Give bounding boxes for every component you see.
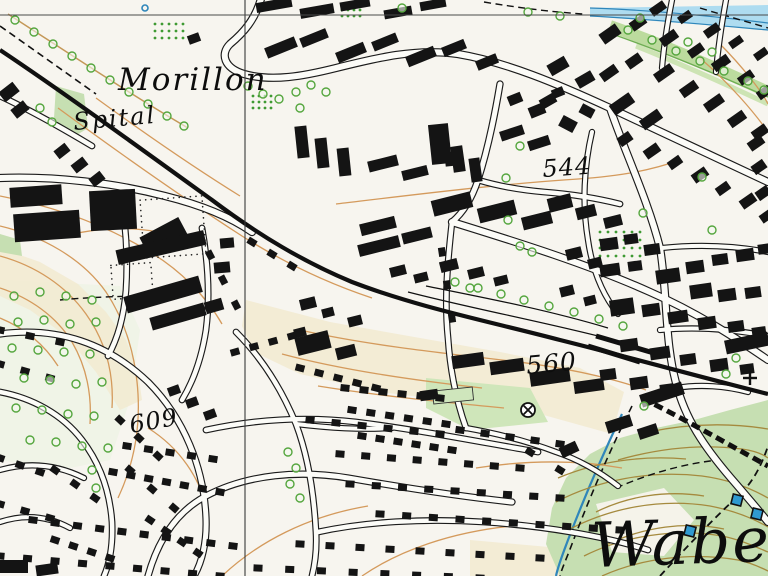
shrub-dot bbox=[359, 9, 362, 12]
building bbox=[416, 392, 426, 400]
building bbox=[443, 280, 451, 290]
shrub-dot bbox=[154, 23, 157, 26]
building bbox=[160, 567, 170, 575]
tree-icon bbox=[12, 404, 20, 412]
shrub-dot bbox=[182, 37, 185, 40]
building bbox=[477, 489, 486, 497]
building bbox=[530, 436, 540, 444]
shrub-dot bbox=[175, 23, 178, 26]
shrub-dot bbox=[623, 231, 626, 234]
building bbox=[375, 435, 385, 443]
building bbox=[393, 437, 403, 445]
tree-icon bbox=[92, 484, 100, 492]
tree-icon bbox=[696, 57, 704, 65]
shrub-dot bbox=[270, 107, 273, 110]
shrub-dot bbox=[161, 30, 164, 33]
tree-icon bbox=[520, 296, 528, 304]
building bbox=[445, 549, 454, 557]
building bbox=[717, 288, 736, 302]
building bbox=[441, 420, 451, 428]
shrub-dot bbox=[639, 255, 642, 258]
tree-icon bbox=[732, 354, 740, 362]
tree-icon bbox=[275, 95, 283, 103]
building bbox=[372, 482, 381, 490]
shrub-dot bbox=[631, 231, 634, 234]
shrub-dot bbox=[161, 37, 164, 40]
tree-icon bbox=[180, 122, 188, 130]
shrub-dot bbox=[154, 30, 157, 33]
tree-icon bbox=[34, 346, 42, 354]
building bbox=[0, 552, 5, 560]
building bbox=[23, 555, 33, 563]
building bbox=[348, 569, 357, 576]
building bbox=[345, 480, 354, 488]
shrub-dot bbox=[175, 37, 178, 40]
tree-icon bbox=[619, 322, 627, 330]
shrub-dot bbox=[639, 239, 642, 242]
shrub-dot bbox=[639, 231, 642, 234]
building bbox=[429, 514, 438, 522]
building bbox=[9, 184, 62, 208]
shrub-dot bbox=[270, 95, 273, 98]
tree-icon bbox=[8, 344, 16, 352]
building bbox=[455, 426, 465, 434]
building bbox=[535, 521, 544, 529]
building bbox=[385, 545, 394, 553]
building bbox=[144, 445, 154, 453]
tree-icon bbox=[760, 86, 768, 94]
shrub-dot bbox=[615, 255, 618, 258]
shrub-dot bbox=[607, 231, 610, 234]
building bbox=[105, 562, 115, 570]
building bbox=[361, 452, 371, 460]
building bbox=[435, 394, 445, 402]
tree-icon bbox=[10, 292, 18, 300]
topographic-map: MorillonSpital544560609Wabe bbox=[0, 0, 768, 576]
building bbox=[415, 547, 424, 555]
building bbox=[366, 409, 376, 417]
tree-icon bbox=[322, 88, 330, 96]
tree-icon bbox=[639, 209, 647, 217]
building bbox=[383, 424, 393, 432]
building bbox=[757, 243, 768, 255]
tree-icon bbox=[36, 288, 44, 296]
tree-icon bbox=[296, 104, 304, 112]
tree-icon bbox=[516, 142, 524, 150]
shrub-dot bbox=[631, 255, 634, 258]
building bbox=[228, 542, 238, 550]
tree-icon bbox=[595, 315, 603, 323]
tree-icon bbox=[52, 438, 60, 446]
building bbox=[253, 564, 262, 571]
building bbox=[357, 432, 367, 440]
building bbox=[535, 554, 544, 562]
building bbox=[325, 542, 334, 550]
building bbox=[412, 456, 422, 464]
building bbox=[378, 388, 388, 396]
building bbox=[411, 440, 421, 448]
building bbox=[562, 523, 571, 531]
tree-icon bbox=[87, 64, 95, 72]
tree-icon bbox=[720, 67, 728, 75]
building bbox=[475, 551, 484, 559]
building bbox=[505, 433, 515, 441]
building bbox=[380, 570, 389, 576]
tree-icon bbox=[163, 112, 171, 120]
tree-icon bbox=[502, 174, 510, 182]
building bbox=[0, 560, 28, 573]
tree-icon bbox=[38, 406, 46, 414]
map-label-elev-560: 560 bbox=[525, 347, 578, 380]
shrub-dot bbox=[182, 23, 185, 26]
building bbox=[503, 491, 512, 499]
building bbox=[450, 487, 459, 495]
tree-icon bbox=[92, 318, 100, 326]
building bbox=[347, 406, 357, 414]
tree-icon bbox=[556, 12, 564, 20]
shrub-dot bbox=[599, 231, 602, 234]
building bbox=[509, 519, 518, 527]
tree-icon bbox=[286, 480, 294, 488]
tree-icon bbox=[504, 216, 512, 224]
shrub-dot bbox=[258, 101, 261, 104]
tree-icon bbox=[284, 448, 292, 456]
building bbox=[188, 570, 198, 576]
building bbox=[28, 516, 38, 524]
building bbox=[117, 528, 127, 536]
building bbox=[438, 247, 446, 257]
building bbox=[122, 442, 132, 450]
shrub-dot bbox=[631, 247, 634, 250]
shrub-dot bbox=[168, 23, 171, 26]
building bbox=[398, 484, 407, 492]
building bbox=[447, 446, 457, 454]
building bbox=[422, 417, 432, 425]
tree-icon bbox=[26, 436, 34, 444]
building bbox=[397, 390, 407, 398]
building bbox=[139, 530, 149, 538]
building bbox=[220, 237, 235, 248]
building bbox=[505, 552, 514, 560]
building bbox=[206, 539, 216, 547]
tree-icon bbox=[466, 284, 474, 292]
building bbox=[340, 384, 350, 392]
tree-icon bbox=[292, 464, 300, 472]
tree-icon bbox=[672, 47, 680, 55]
tree-icon bbox=[98, 378, 106, 386]
building bbox=[448, 313, 456, 323]
building bbox=[305, 416, 315, 424]
tree-icon bbox=[72, 380, 80, 388]
tree-icon bbox=[722, 370, 730, 378]
tree-icon bbox=[48, 118, 56, 126]
building bbox=[739, 363, 754, 375]
building bbox=[285, 566, 294, 573]
building bbox=[335, 450, 345, 458]
building bbox=[515, 464, 525, 472]
building bbox=[438, 458, 448, 466]
tree-icon bbox=[451, 278, 459, 286]
building bbox=[529, 492, 538, 500]
tree-icon bbox=[296, 494, 304, 502]
building bbox=[679, 353, 696, 366]
tree-icon bbox=[648, 36, 656, 44]
tree-icon bbox=[744, 77, 752, 85]
shrub-dot bbox=[154, 37, 157, 40]
tree-icon bbox=[708, 226, 716, 234]
tree-icon bbox=[36, 104, 44, 112]
building bbox=[385, 411, 395, 419]
shrub-dot bbox=[270, 101, 273, 104]
building bbox=[744, 286, 761, 299]
building bbox=[331, 419, 341, 427]
shrub-dot bbox=[258, 107, 261, 110]
building bbox=[429, 443, 439, 451]
tree-icon bbox=[106, 76, 114, 84]
tree-icon bbox=[14, 318, 22, 326]
tree-icon bbox=[307, 81, 315, 89]
tree-icon bbox=[474, 284, 482, 292]
building bbox=[711, 253, 728, 266]
building bbox=[455, 516, 464, 524]
building bbox=[627, 260, 642, 272]
tree-icon bbox=[11, 16, 19, 24]
tree-icon bbox=[545, 302, 553, 310]
building bbox=[623, 233, 638, 245]
tree-icon bbox=[78, 442, 86, 450]
tree-icon bbox=[292, 88, 300, 96]
shrub-dot bbox=[161, 23, 164, 26]
shrub-dot bbox=[264, 107, 267, 110]
building bbox=[555, 440, 565, 448]
building bbox=[357, 422, 367, 430]
building bbox=[165, 448, 175, 456]
tree-icon bbox=[40, 316, 48, 324]
building bbox=[464, 460, 474, 468]
shrub-dot bbox=[615, 231, 618, 234]
building bbox=[359, 386, 369, 394]
tree-icon bbox=[86, 350, 94, 358]
building bbox=[295, 540, 304, 548]
tree-icon bbox=[68, 52, 76, 60]
building bbox=[685, 260, 704, 274]
tree-icon bbox=[60, 348, 68, 356]
building bbox=[480, 429, 490, 437]
building bbox=[208, 455, 218, 463]
shrub-dot bbox=[639, 247, 642, 250]
building bbox=[50, 557, 60, 565]
building bbox=[424, 485, 433, 493]
building bbox=[482, 517, 491, 525]
shrub-dot bbox=[182, 30, 185, 33]
building bbox=[643, 243, 660, 256]
tree-icon bbox=[66, 320, 74, 328]
tree-icon bbox=[88, 296, 96, 304]
building bbox=[187, 452, 197, 460]
building bbox=[133, 565, 143, 573]
building bbox=[13, 210, 81, 243]
tree-icon bbox=[90, 412, 98, 420]
building bbox=[78, 560, 88, 568]
building bbox=[555, 494, 564, 502]
building bbox=[609, 297, 635, 316]
tree-icon bbox=[708, 48, 716, 56]
shrub-dot bbox=[252, 101, 255, 104]
tree-icon bbox=[20, 374, 28, 382]
shrub-dot bbox=[623, 247, 626, 250]
building bbox=[697, 316, 716, 330]
building bbox=[435, 430, 445, 438]
building bbox=[490, 462, 500, 470]
map-label-elev-544: 544 bbox=[541, 152, 592, 183]
tree-icon bbox=[30, 28, 38, 36]
building bbox=[214, 261, 231, 273]
building bbox=[89, 189, 137, 231]
tree-icon bbox=[88, 466, 96, 474]
tree-icon bbox=[62, 292, 70, 300]
shrub-dot bbox=[264, 101, 267, 104]
tree-icon bbox=[624, 26, 632, 34]
building bbox=[387, 454, 397, 462]
building bbox=[402, 512, 411, 520]
building bbox=[735, 248, 754, 262]
shrub-dot bbox=[607, 255, 610, 258]
building bbox=[403, 414, 413, 422]
building bbox=[412, 571, 421, 576]
tree-icon bbox=[698, 173, 706, 181]
shrub-dot bbox=[252, 107, 255, 110]
shrub-dot bbox=[175, 30, 178, 33]
building bbox=[629, 376, 648, 390]
shrub-dot bbox=[168, 37, 171, 40]
tree-icon bbox=[640, 402, 648, 410]
tree-icon bbox=[497, 290, 505, 298]
building bbox=[355, 544, 364, 552]
tree-icon bbox=[516, 242, 524, 250]
building bbox=[409, 427, 419, 435]
building bbox=[599, 237, 618, 251]
shrub-dot bbox=[623, 255, 626, 258]
shrub-dot bbox=[168, 30, 171, 33]
building bbox=[727, 320, 744, 333]
building bbox=[641, 303, 660, 317]
tree-icon bbox=[398, 4, 406, 12]
building bbox=[375, 510, 384, 518]
tree-icon bbox=[46, 376, 54, 384]
map-label-wabern: Wabe bbox=[590, 503, 768, 576]
building bbox=[95, 525, 105, 533]
topographic-map-canvas: MorillonSpital544560609Wabe bbox=[0, 0, 768, 576]
tree-icon bbox=[528, 248, 536, 256]
tree-icon bbox=[64, 410, 72, 418]
tree-icon bbox=[104, 444, 112, 452]
building bbox=[619, 338, 638, 352]
tree-icon bbox=[684, 38, 692, 46]
building bbox=[317, 567, 326, 574]
tree-icon bbox=[49, 40, 57, 48]
building bbox=[73, 522, 83, 530]
map-label-morillon: Morillon bbox=[117, 62, 268, 98]
tree-icon bbox=[570, 308, 578, 316]
